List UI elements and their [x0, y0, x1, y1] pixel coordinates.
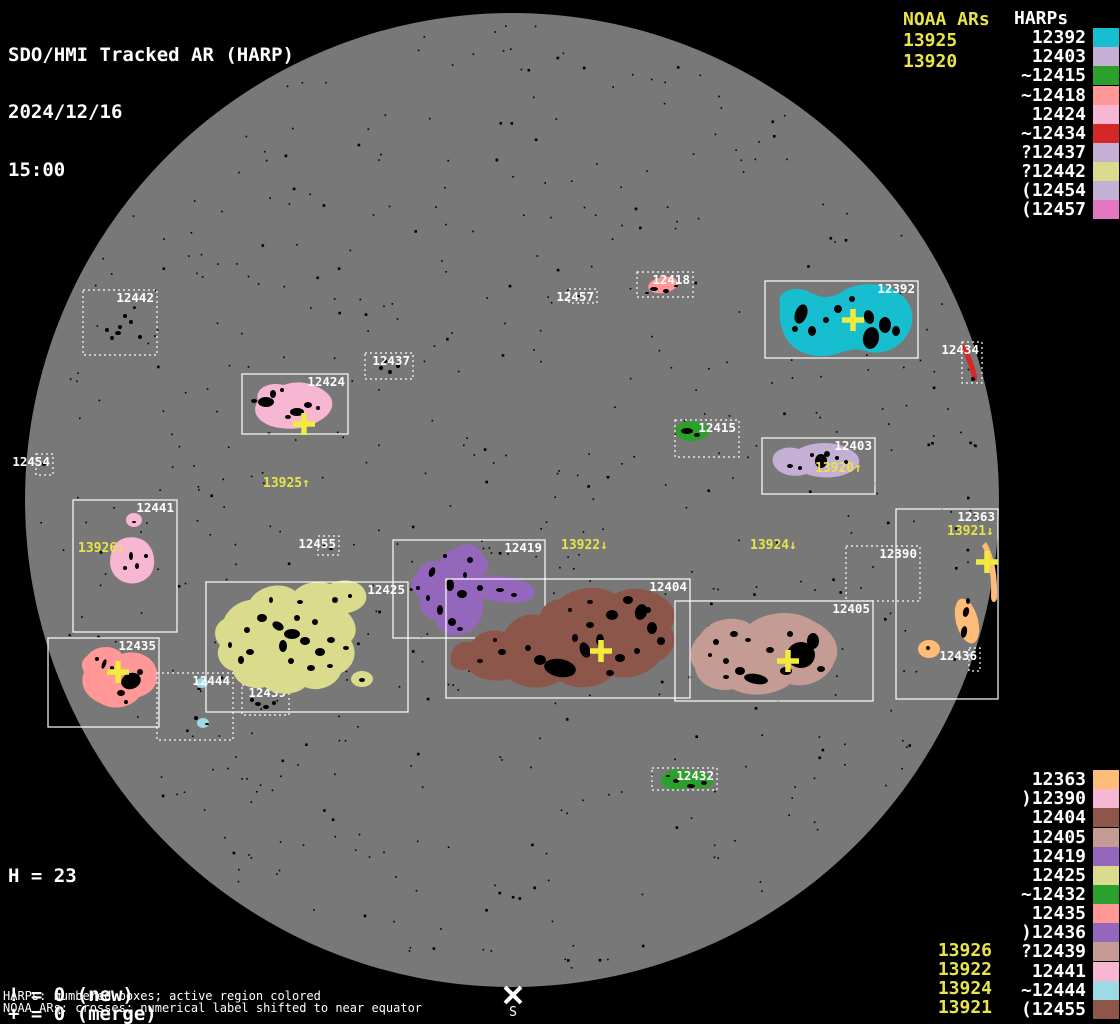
- sunspot-patch: [238, 656, 244, 664]
- page-title: SDO/HMI Tracked AR (HARP): [8, 46, 294, 65]
- harp-box-label: 12441: [136, 500, 174, 515]
- noaa-disk-label: 13921↓: [947, 524, 994, 539]
- harp-region-12457: 12457: [556, 289, 597, 304]
- harp-color-swatch: [1093, 962, 1119, 981]
- sunspot-patch: [246, 649, 254, 655]
- noaa-ar-number: 13921: [938, 998, 992, 1017]
- harp-number-label: 12419: [1032, 847, 1086, 866]
- sunspot-patch: [343, 646, 349, 650]
- sunspot-patch: [824, 451, 830, 457]
- sunspot-patch: [300, 637, 310, 645]
- sunspot-patch: [463, 572, 467, 578]
- sunspot-patch: [787, 464, 793, 468]
- harp-list-item: ~12418: [1021, 85, 1119, 104]
- harp-box-label: 12425: [367, 582, 405, 597]
- harp-list-item: ?12439: [1021, 942, 1119, 961]
- sunspot-patch: [735, 667, 745, 675]
- harp-box-label: 12455: [298, 536, 336, 551]
- sunspot-patch: [723, 675, 729, 679]
- harp-list-item: )12436: [1021, 923, 1119, 942]
- sunspot-patch: [118, 325, 122, 329]
- sunspot-patch: [493, 638, 497, 642]
- harp-color-swatch: [1093, 847, 1119, 866]
- sunspot-patch: [257, 614, 267, 622]
- sunspot-patch: [316, 406, 320, 410]
- harp-color-swatch: [1093, 885, 1119, 904]
- harps-legend-bottom: 12363)1239012404124051241912425~12432124…: [1021, 770, 1119, 1019]
- sunspot-patch: [124, 700, 128, 704]
- sunspot-patch: [359, 678, 365, 682]
- harp-list-item: 12392: [1021, 28, 1119, 47]
- harp-box-label: 12404: [649, 579, 687, 594]
- harp-list-item: ~12434: [1021, 124, 1119, 143]
- harp-color-swatch: [1093, 181, 1119, 200]
- harp-list-item: (12457: [1021, 200, 1119, 219]
- harp-list-item: ?12437: [1021, 143, 1119, 162]
- noaa-disk-label: 13926↓: [78, 541, 125, 556]
- active-region-blob: [197, 718, 209, 728]
- sunspot-patch: [228, 642, 232, 648]
- harp-number-label: ~12418: [1021, 86, 1086, 105]
- sunspot-patch: [606, 670, 614, 676]
- harp-list-item: 12424: [1021, 105, 1119, 124]
- harp-box-label: 12418: [652, 272, 690, 287]
- harp-box-label: 12415: [698, 420, 736, 435]
- harp-number-label: ?12439: [1021, 942, 1086, 961]
- sunspot-patch: [681, 428, 693, 434]
- sunspot-patch: [312, 619, 318, 625]
- harp-color-swatch: [1093, 86, 1119, 105]
- noaa-ars-legend-bottom: 13926139221392413921: [938, 941, 992, 1018]
- harp-color-swatch: [1093, 105, 1119, 124]
- harp-number-label: 12424: [1032, 105, 1086, 124]
- harp-number-label: (12455: [1021, 1000, 1086, 1019]
- footer-line: NOAA ARs: crosses; numerical label shift…: [3, 1003, 422, 1015]
- sunspot-patch: [105, 328, 109, 332]
- sunspot-patch: [650, 287, 658, 291]
- sunspot-patch: [730, 631, 738, 637]
- sunspot-patch: [426, 595, 430, 601]
- noaa-ar-number: 13920: [903, 51, 990, 72]
- sunspot-patch: [926, 646, 930, 650]
- sunspot-patch: [304, 402, 312, 408]
- harp-number-label: 12363: [1032, 770, 1086, 789]
- sunspot-patch: [572, 634, 578, 642]
- harp-list-item: 12441: [1021, 962, 1119, 981]
- noaa-ar-number: 13922: [938, 960, 992, 979]
- harp-box-label: 12419: [504, 540, 542, 555]
- sunspot-patch: [586, 622, 594, 628]
- sunspot-patch: [823, 317, 829, 323]
- noaa-disk-label: 13920↑: [815, 461, 862, 476]
- harp-number-label: )12436: [1021, 923, 1086, 942]
- sunspot-patch: [279, 640, 287, 652]
- sunspot-patch: [294, 615, 300, 621]
- harp-list-item: ?12442: [1021, 162, 1119, 181]
- noaa-disk-label: 13922↓: [561, 538, 608, 553]
- sunspot-patch: [623, 596, 633, 604]
- sunspot-patch: [511, 593, 517, 597]
- sunspot-patch: [297, 600, 303, 604]
- sunspot-patch: [197, 688, 201, 690]
- sunspot-patch: [568, 608, 572, 612]
- sunspot-patch: [498, 649, 506, 655]
- noaa-ars-legend-top: NOAA ARs 1392513920: [903, 9, 990, 72]
- sunspot-patch: [766, 647, 774, 653]
- south-pole-x: [505, 987, 521, 1003]
- sunspot-patch: [525, 645, 531, 651]
- harp-box-label: 12363: [957, 509, 995, 524]
- harp-number-label: 12392: [1032, 28, 1086, 47]
- sunspot-patch: [966, 598, 970, 604]
- harps-legend-top: 1239212403~12415~1241812424~12434?12437?…: [1021, 28, 1119, 220]
- sunspot-patch: [332, 597, 338, 603]
- app-title-block: SDO/HMI Tracked AR (HARP) 2024/12/16 15:…: [8, 7, 294, 219]
- harp-color-swatch: [1093, 808, 1119, 827]
- harp-number-label: (12454: [1021, 181, 1086, 200]
- harp-box-label: 12390: [879, 546, 917, 561]
- sunspot-patch: [135, 563, 139, 569]
- sunspot-patch: [496, 588, 504, 592]
- time-label: 15:00: [8, 161, 294, 180]
- sunspot-patch: [315, 648, 325, 656]
- sunspot-patch: [255, 702, 261, 706]
- harp-color-swatch: [1093, 28, 1119, 47]
- sunspot-patch: [534, 655, 546, 665]
- sunspot-patch: [457, 627, 463, 631]
- sunspot-patch: [606, 610, 618, 620]
- sunspot-patch: [792, 326, 798, 332]
- sunspot-patch: [457, 590, 467, 598]
- harp-list-item: ~12444: [1021, 981, 1119, 1000]
- sunspot-patch: [807, 633, 819, 649]
- harp-number-label: (12457: [1021, 200, 1086, 219]
- sunspot-patch: [123, 566, 127, 570]
- noaa-ar-number: 13926: [938, 941, 992, 960]
- harp-color-swatch: [1093, 124, 1119, 143]
- harp-number-label: 12405: [1032, 828, 1086, 847]
- sunspot-patch: [745, 638, 751, 642]
- harp-number-label: ~12434: [1021, 124, 1086, 143]
- sunspot-patch: [244, 627, 250, 633]
- harp-color-swatch: [1093, 770, 1119, 789]
- noaa-disk-label: 13925↑: [263, 476, 310, 491]
- sunspot-patch: [834, 305, 842, 313]
- sunspot-patch: [443, 554, 447, 558]
- sunspot-patch: [115, 331, 121, 335]
- sunspot-patch: [144, 554, 148, 558]
- harp-color-swatch: [1093, 828, 1119, 847]
- sunspot-patch: [708, 653, 712, 657]
- sunspot-patch: [272, 701, 276, 705]
- harp-number-label: )12390: [1021, 789, 1086, 808]
- sunspot-patch: [416, 586, 420, 590]
- noaa-ars-header: NOAA ARs: [903, 9, 990, 30]
- sunspot-patch: [205, 723, 209, 725]
- harp-box-label: 12405: [832, 601, 870, 616]
- harp-list-item: )12390: [1021, 789, 1119, 808]
- harp-tracker-screen: 1239212418124421243712424124341241512403…: [0, 0, 1120, 1024]
- sunspot-patch: [477, 659, 483, 663]
- harp-list-item: 12363: [1021, 770, 1119, 789]
- harp-number-label: ~12415: [1021, 66, 1086, 85]
- sunspot-patch: [288, 658, 294, 664]
- harp-count: H = 23: [8, 867, 225, 886]
- sunspot-patch: [892, 326, 900, 336]
- harp-box-label: 12436: [939, 648, 977, 663]
- harp-box-label: 12442: [116, 290, 154, 305]
- harp-list-item: 12435: [1021, 904, 1119, 923]
- harp-box-label: 12424: [307, 374, 345, 389]
- noaa-disk-label: 13924↓: [750, 538, 797, 553]
- sunspot-patch: [817, 666, 825, 672]
- sunspot-patch: [615, 654, 625, 662]
- sunspot-patch: [810, 453, 814, 457]
- sunspot-patch: [269, 597, 273, 603]
- sunspot-patch: [787, 631, 793, 637]
- sunspot-patch: [285, 415, 291, 419]
- sunspot-patch: [808, 326, 816, 336]
- sunspot-patch: [95, 657, 99, 661]
- sunspot-patch: [971, 377, 975, 381]
- harp-number-label: 12403: [1032, 47, 1086, 66]
- sunspot-patch: [798, 466, 802, 470]
- harps-header: HARPs: [1014, 9, 1068, 28]
- active-region-blob: [126, 513, 142, 527]
- sunspot-patch: [251, 399, 257, 403]
- harp-number-label: 12441: [1032, 962, 1086, 981]
- harp-number-label: ~12432: [1021, 885, 1086, 904]
- harp-color-swatch: [1093, 923, 1119, 942]
- sunspot-patch: [687, 784, 695, 788]
- noaa-ar-number: 13925: [903, 30, 990, 51]
- sunspot-patch: [723, 658, 729, 664]
- harp-color-swatch: [1093, 47, 1119, 66]
- sunspot-patch: [647, 622, 657, 634]
- date-label: 2024/12/16: [8, 103, 294, 122]
- harp-color-swatch: [1093, 66, 1119, 85]
- noaa-ar-number: 13924: [938, 979, 992, 998]
- harp-box-label: 12437: [372, 353, 410, 368]
- sunspot-patch: [477, 585, 483, 591]
- harp-color-swatch: [1093, 981, 1119, 1000]
- sunspot-patch: [327, 637, 335, 643]
- harp-number-label: 12435: [1032, 904, 1086, 923]
- sunspot-patch: [280, 388, 284, 392]
- harp-list-item: ~12415: [1021, 66, 1119, 85]
- sunspot-patch: [284, 629, 300, 639]
- harp-color-swatch: [1093, 1000, 1119, 1019]
- harp-color-swatch: [1093, 904, 1119, 923]
- harp-box-label: 12457: [556, 289, 594, 304]
- harp-list-item: 12419: [1021, 847, 1119, 866]
- sunspot-patch: [348, 594, 352, 598]
- harp-color-swatch: [1093, 789, 1119, 808]
- sunspot-patch: [132, 521, 136, 523]
- sunspot-patch: [437, 605, 443, 615]
- sunspot-patch: [467, 557, 473, 563]
- sunspot-patch: [123, 314, 127, 318]
- harp-number-label: ?12437: [1021, 143, 1086, 162]
- harp-number-label: ?12442: [1021, 162, 1086, 181]
- harp-list-item: 12403: [1021, 47, 1119, 66]
- harp-color-swatch: [1093, 200, 1119, 219]
- harp-number-label: ~12444: [1021, 981, 1086, 1000]
- sunspot-patch: [446, 579, 454, 591]
- sunspot-patch: [645, 607, 651, 613]
- sunspot-patch: [657, 637, 665, 645]
- harp-list-item: 12404: [1021, 808, 1119, 827]
- sunspot-patch: [194, 716, 198, 720]
- sunspot-patch: [587, 600, 593, 604]
- harp-number-label: 12404: [1032, 808, 1086, 827]
- harp-box-label: 12435: [118, 638, 156, 653]
- harp-list-item: 12425: [1021, 866, 1119, 885]
- sunspot-patch: [849, 296, 855, 302]
- sunspot-patch: [645, 292, 649, 294]
- sunspot-patch: [327, 664, 333, 668]
- harp-color-swatch: [1093, 162, 1119, 181]
- harp-color-swatch: [1093, 942, 1119, 961]
- harp-color-swatch: [1093, 143, 1119, 162]
- sunspot-patch: [663, 289, 669, 293]
- sunspot-patch: [879, 317, 891, 333]
- sunspot-patch: [137, 669, 143, 675]
- sunspot-patch: [270, 390, 276, 398]
- harp-color-swatch: [1093, 866, 1119, 885]
- harp-box-label: 12434: [941, 342, 979, 357]
- sunspot-patch: [448, 618, 456, 626]
- sunspot-patch: [835, 456, 839, 460]
- harp-list-item: ~12432: [1021, 885, 1119, 904]
- sunspot-patch: [666, 775, 670, 777]
- sunspot-patch: [263, 705, 269, 709]
- footer-notes: HARPs: numbered boxes; active region col…: [3, 991, 422, 1014]
- harp-box-label: 12432: [676, 768, 714, 783]
- sunspot-patch: [129, 320, 133, 324]
- sunspot-patch: [138, 335, 142, 339]
- sunspot-patch: [129, 552, 133, 560]
- harp-list-item: (12455: [1021, 1000, 1119, 1019]
- sunspot-patch: [388, 370, 392, 374]
- noaa-ars-list-top: 1392513920: [903, 30, 990, 72]
- sunspot-patch: [307, 665, 315, 671]
- stats-gap: [8, 925, 225, 947]
- harp-box-label: 12403: [834, 438, 872, 453]
- sunspot-patch: [117, 690, 125, 696]
- sunspot-patch: [258, 397, 274, 407]
- harp-number-label: 12425: [1032, 866, 1086, 885]
- harp-list-item: (12454: [1021, 181, 1119, 200]
- harp-list-item: 12405: [1021, 827, 1119, 846]
- south-pole-label: S: [509, 1005, 517, 1020]
- harp-box-label: 12454: [12, 454, 50, 469]
- sunspot-patch: [713, 639, 719, 645]
- harp-box-label: 12444: [192, 673, 230, 688]
- sunspot-patch: [110, 336, 114, 340]
- harp-box-label: 12392: [877, 281, 915, 296]
- sunspot-patch: [634, 648, 640, 654]
